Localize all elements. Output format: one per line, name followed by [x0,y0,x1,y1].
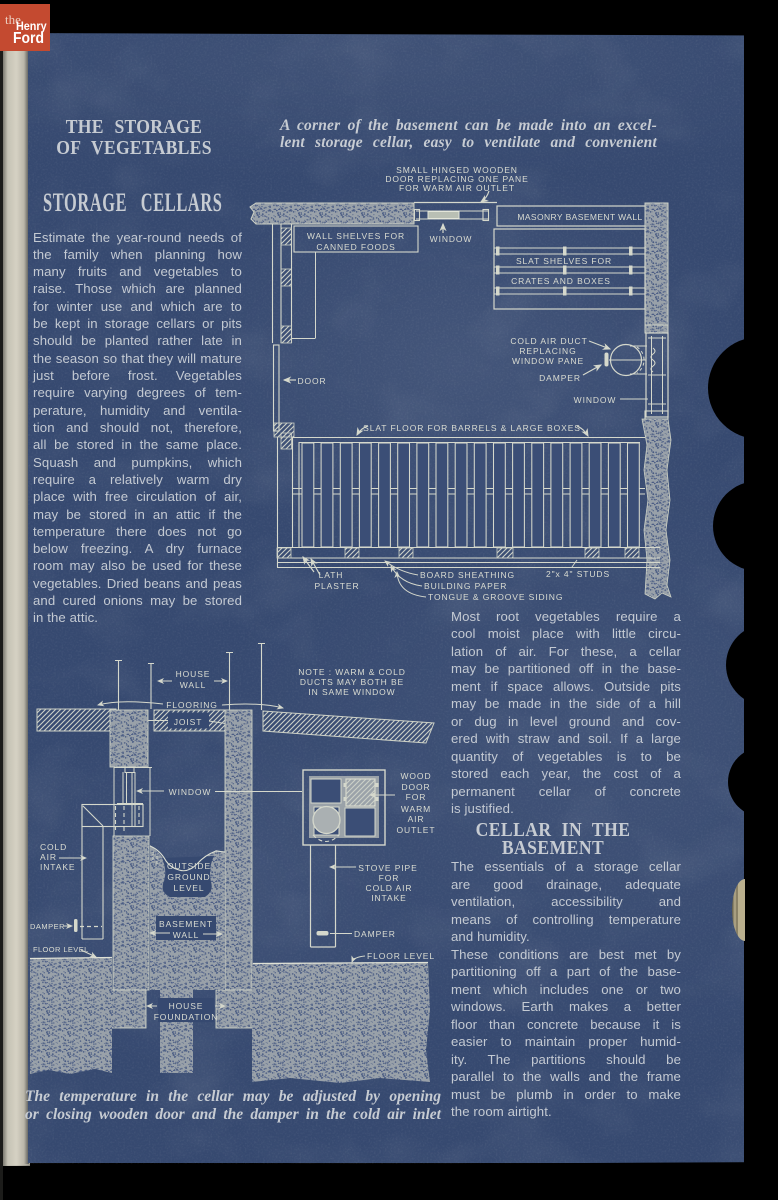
svg-text:BASEMENT: BASEMENT [159,919,213,929]
svg-text:PLASTER: PLASTER [314,581,359,591]
svg-text:HOUSE: HOUSE [176,669,211,679]
svg-text:FLOOR LEVEL: FLOOR LEVEL [367,951,435,961]
svg-text:REPLACING: REPLACING [519,346,576,356]
svg-text:FOUNDATION: FOUNDATION [154,1012,219,1022]
svg-text:FOR: FOR [379,873,400,883]
svg-text:GROUND: GROUND [167,872,210,882]
svg-text:IN SAME WINDOW: IN SAME WINDOW [308,687,395,697]
svg-text:COLD AIR DUCT: COLD AIR DUCT [510,336,587,346]
svg-text:DUCTS MAY BOTH BE: DUCTS MAY BOTH BE [300,677,404,687]
svg-text:WINDOW PANE: WINDOW PANE [512,356,584,366]
svg-text:WOOD: WOOD [401,771,432,781]
svg-text:WINDOW: WINDOW [169,787,212,797]
svg-text:TONGUE & GROOVE SIDING: TONGUE & GROOVE SIDING [428,592,563,602]
svg-text:FLOOR LEVEL: FLOOR LEVEL [33,945,89,954]
svg-text:AIR: AIR [40,852,57,862]
svg-text:DOOR: DOOR [401,782,430,792]
svg-text:WALL SHELVES FOR: WALL SHELVES FOR [307,231,405,241]
svg-text:DAMPER: DAMPER [354,929,396,939]
svg-text:BOARD SHEATHING: BOARD SHEATHING [420,570,515,580]
svg-text:FLOORING: FLOORING [166,700,218,710]
svg-text:INTAKE: INTAKE [40,862,75,872]
svg-text:WINDOW: WINDOW [574,395,617,405]
svg-text:CANNED FOODS: CANNED FOODS [316,242,395,252]
svg-text:SLAT SHELVES FOR: SLAT SHELVES FOR [516,256,612,266]
svg-text:HOUSE: HOUSE [169,1001,204,1011]
svg-text:JOIST: JOIST [174,717,203,727]
svg-text:BUILDING PAPER: BUILDING PAPER [424,581,507,591]
svg-text:LATH: LATH [319,570,344,580]
svg-text:WARM: WARM [401,804,431,814]
svg-text:COLD: COLD [40,842,67,852]
svg-text:NOTE : WARM & COLD: NOTE : WARM & COLD [298,667,406,677]
svg-text:STOVE PIPE: STOVE PIPE [358,863,417,873]
svg-text:OUTLET: OUTLET [397,825,436,835]
svg-text:MASONRY BASEMENT WALL: MASONRY BASEMENT WALL [517,212,642,222]
svg-text:DOOR: DOOR [297,376,326,386]
svg-text:WALL: WALL [180,680,206,690]
svg-text:WALL: WALL [173,930,199,940]
svg-text:COLD AIR: COLD AIR [366,883,413,893]
svg-text:2"x 4" STUDS: 2"x 4" STUDS [546,569,610,579]
svg-text:SLAT FLOOR FOR BARRELS & LARGE: SLAT FLOOR FOR BARRELS & LARGE BOXES [363,423,581,433]
svg-text:DAMPER: DAMPER [539,373,581,383]
svg-text:FOR: FOR [406,792,427,802]
svg-text:WINDOW: WINDOW [430,234,473,244]
svg-text:CRATES AND BOXES: CRATES AND BOXES [511,276,611,286]
svg-text:INTAKE: INTAKE [371,893,406,903]
svg-text:LEVEL: LEVEL [174,883,205,893]
svg-text:AIR: AIR [408,814,425,824]
svg-text:OUTSIDE: OUTSIDE [167,861,211,871]
svg-text:DAMPER: DAMPER [30,922,65,931]
svg-text:FOR WARM AIR OUTLET: FOR WARM AIR OUTLET [399,183,515,193]
